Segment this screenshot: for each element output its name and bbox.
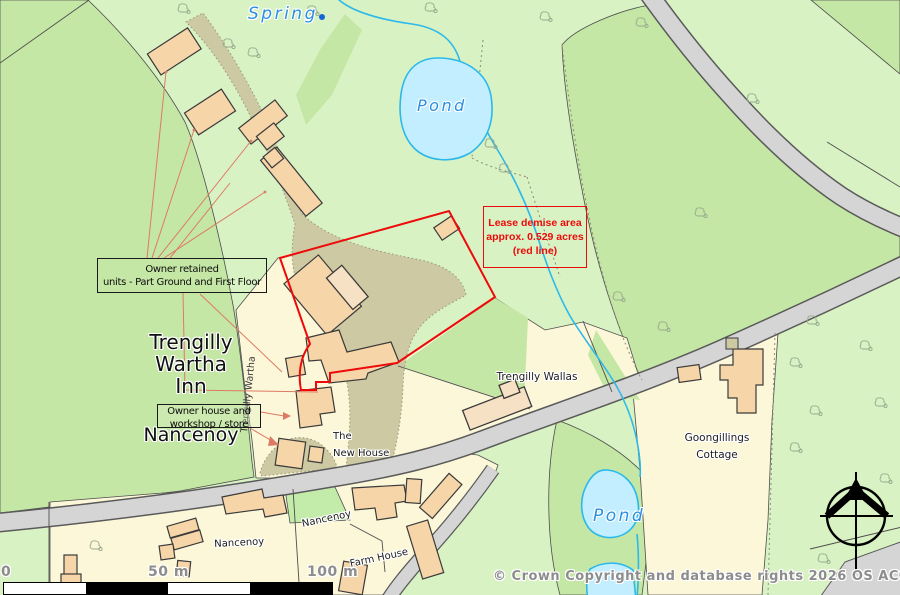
owner-retained-annotation: Owner retained units - Part Ground and F… (97, 258, 267, 293)
inn-label: Trengilly Wartha Inn (131, 331, 251, 397)
scale-segment (250, 583, 332, 594)
goongillings-label: Goongillings Cottage (662, 430, 772, 464)
pond-upper-label: Pond (417, 96, 467, 115)
scale-zero-label: 0 (1, 564, 11, 580)
copyright-notice: © Crown Copyright and database rights 20… (493, 569, 900, 584)
scale-end-label: 100 m (307, 564, 358, 580)
scale-segment (4, 583, 86, 594)
scale-mid-label: 50 m (148, 564, 189, 580)
map-canvas (0, 0, 900, 595)
spring-dot (319, 14, 325, 20)
lease-demise-annotation: Lease demise area approx. 0.529 acres (r… (483, 206, 587, 268)
new-house-label: The New House (333, 428, 389, 462)
owner-house-annotation: Owner house and workshop / store (157, 404, 261, 428)
pond-lower-label: Pond (593, 506, 645, 526)
scale-segment (168, 583, 250, 594)
scale-segment (86, 583, 168, 594)
spring-label: Spring (248, 4, 318, 24)
trengilly-wallas-label: Trengilly Wallas (482, 371, 592, 383)
map-root: Spring Pond Pond Trengilly Wartha Inn Na… (0, 0, 900, 595)
scale-bar (3, 582, 333, 595)
